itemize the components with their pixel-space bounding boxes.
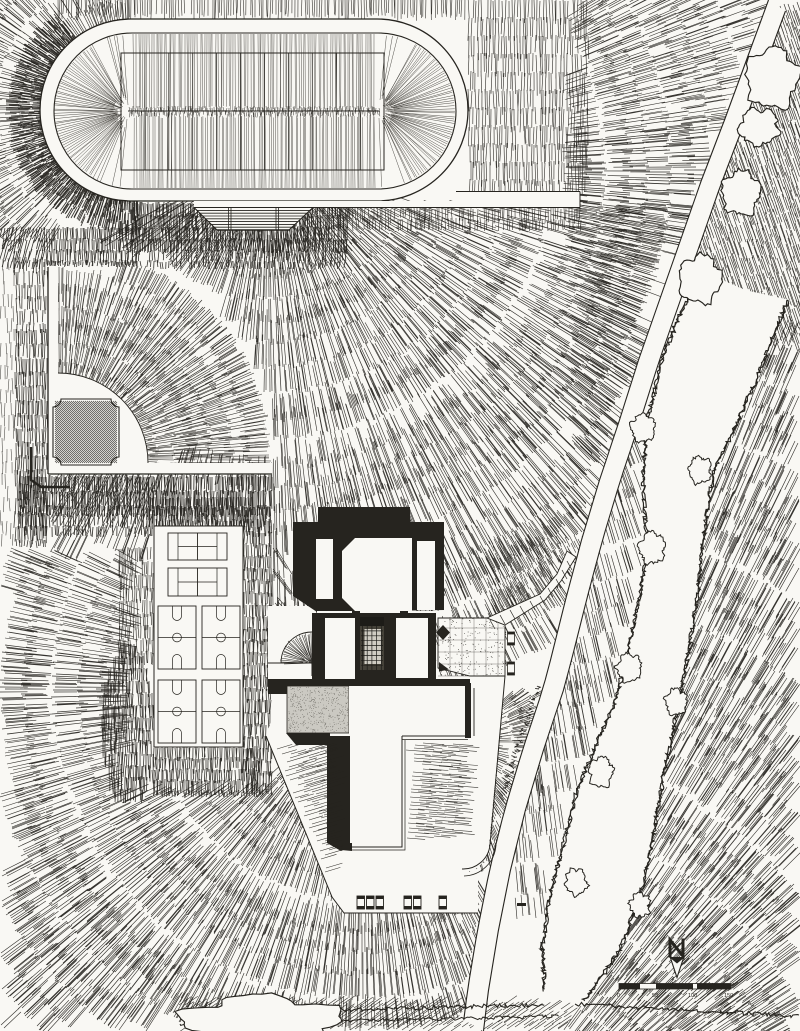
svg-text:100: 100 xyxy=(688,993,697,999)
svg-text:0: 0 xyxy=(617,993,620,999)
svg-text:150: 150 xyxy=(724,993,733,999)
svg-text:50: 50 xyxy=(652,993,658,999)
